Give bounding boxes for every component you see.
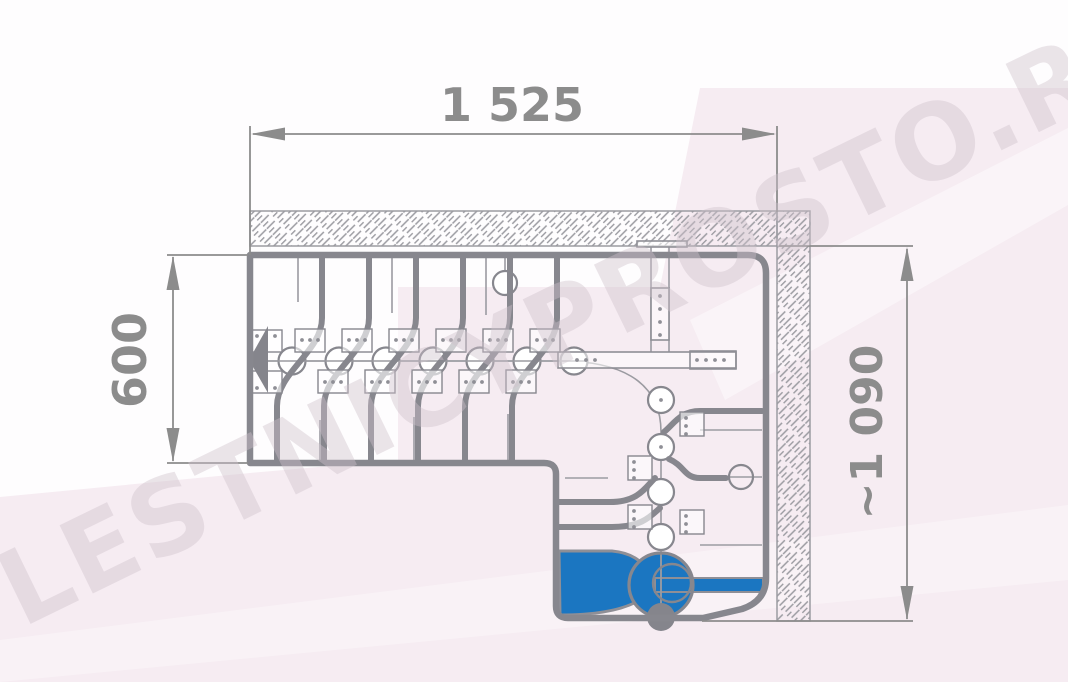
drawing-svg: 1 525 600 ~1 090 LESTNICYPROSTO.RU: [0, 0, 1068, 682]
dim-label-top: 1 525: [440, 78, 584, 132]
stair-plan-drawing: 1 525 600 ~1 090 LESTNICYPROSTO.RU: [0, 0, 1068, 682]
dim-label-left: 600: [103, 312, 157, 408]
first-step-strip: [655, 578, 763, 592]
dim-label-right: ~1 090: [842, 345, 893, 520]
